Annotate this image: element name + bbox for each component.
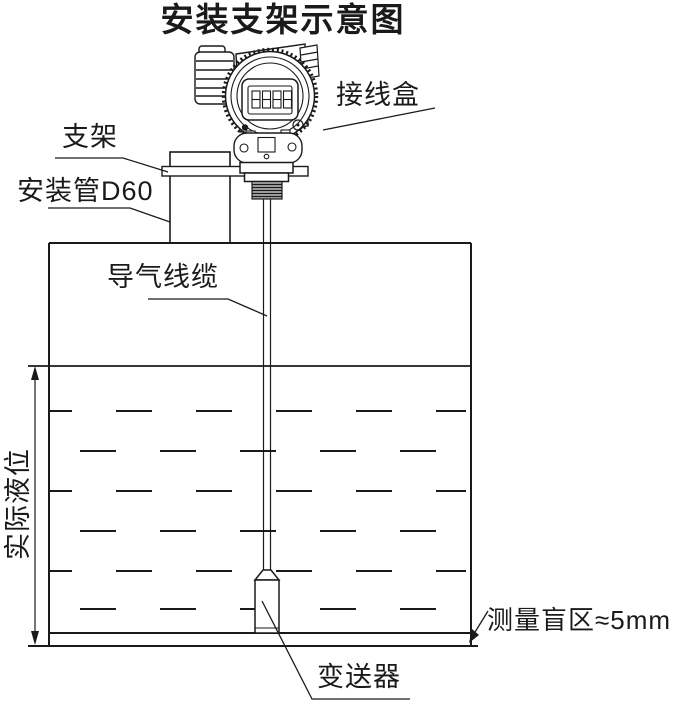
hex-nut	[240, 163, 293, 174]
bracket-label: 支架	[62, 123, 118, 153]
lcd-display	[242, 79, 298, 120]
leader-junction-box	[323, 108, 435, 130]
tank	[28, 243, 478, 646]
blind-zone-label: 测量盲区≈5mm	[487, 606, 671, 635]
transmitter-head	[195, 44, 319, 163]
leader-air-cable	[148, 299, 267, 316]
air-cable-label: 导气线缆	[107, 263, 219, 293]
arrow-up-icon	[31, 366, 39, 380]
page-title: 安装支架示意图	[150, 2, 416, 38]
diagram-stage: 安装支架示意图 接线盒 支架 安装管D60 导气线缆 实际液位 测量盲区≈5mm…	[0, 0, 700, 708]
probe-label: 变送器	[317, 663, 401, 693]
arrow-down-icon	[31, 631, 39, 645]
probe	[255, 570, 279, 633]
junction-box-label: 接线盒	[336, 81, 420, 111]
neck-flange	[234, 133, 302, 163]
threaded-stem	[252, 182, 282, 200]
mounting-pipe	[170, 152, 230, 243]
actual-level-label: 实际液位	[4, 434, 34, 574]
mounting-pipe-label: 安装管D60	[17, 177, 154, 207]
leader-mounting-pipe	[48, 208, 170, 222]
air-guide-cable	[264, 199, 271, 571]
bolt-left-icon	[242, 124, 248, 130]
leader-bracket	[55, 158, 168, 172]
process-connection	[240, 163, 293, 200]
